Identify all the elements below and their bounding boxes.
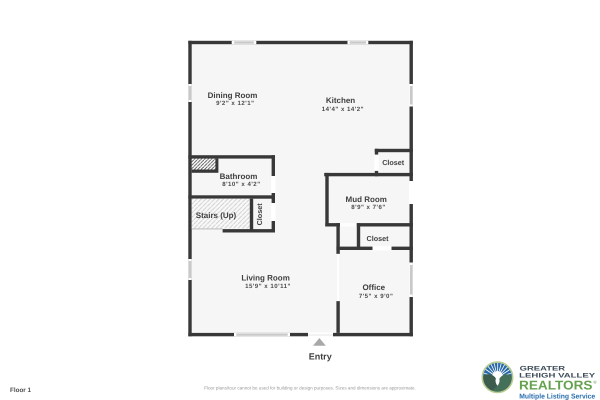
- svg-text:8'10" x 4'2": 8'10" x 4'2": [222, 181, 260, 188]
- svg-text:Dining Room: Dining Room: [208, 91, 258, 100]
- svg-text:Kitchen: Kitchen: [326, 96, 355, 105]
- svg-text:Closet: Closet: [382, 158, 405, 167]
- svg-text:Office: Office: [362, 283, 385, 292]
- svg-text:Bathroom: Bathroom: [220, 172, 258, 181]
- svg-text:Multiple Listing Service: Multiple Listing Service: [519, 393, 595, 400]
- svg-text:REALTORS: REALTORS: [519, 378, 593, 393]
- svg-text:GREATER: GREATER: [520, 365, 566, 372]
- svg-text:8'9" x 7'6": 8'9" x 7'6": [351, 204, 386, 211]
- svg-text:®: ®: [594, 380, 597, 385]
- svg-text:Closet: Closet: [367, 234, 390, 243]
- svg-text:14'4" x 14'2": 14'4" x 14'2": [322, 106, 364, 113]
- svg-text:9'2" x 12'1": 9'2" x 12'1": [216, 100, 254, 107]
- svg-text:Mud Room: Mud Room: [346, 195, 387, 204]
- svg-text:7'5" x 9'0": 7'5" x 9'0": [359, 293, 394, 300]
- svg-text:Entry: Entry: [309, 351, 332, 361]
- svg-text:Floor 1: Floor 1: [10, 387, 31, 394]
- svg-text:Floor plans/tour cannot be use: Floor plans/tour cannot be used for buil…: [204, 385, 416, 390]
- svg-text:15'9" x 10'11": 15'9" x 10'11": [245, 283, 291, 290]
- svg-text:Living Room: Living Room: [241, 274, 289, 283]
- svg-text:Stairs (Up): Stairs (Up): [196, 211, 237, 220]
- svg-text:Closet: Closet: [255, 203, 264, 226]
